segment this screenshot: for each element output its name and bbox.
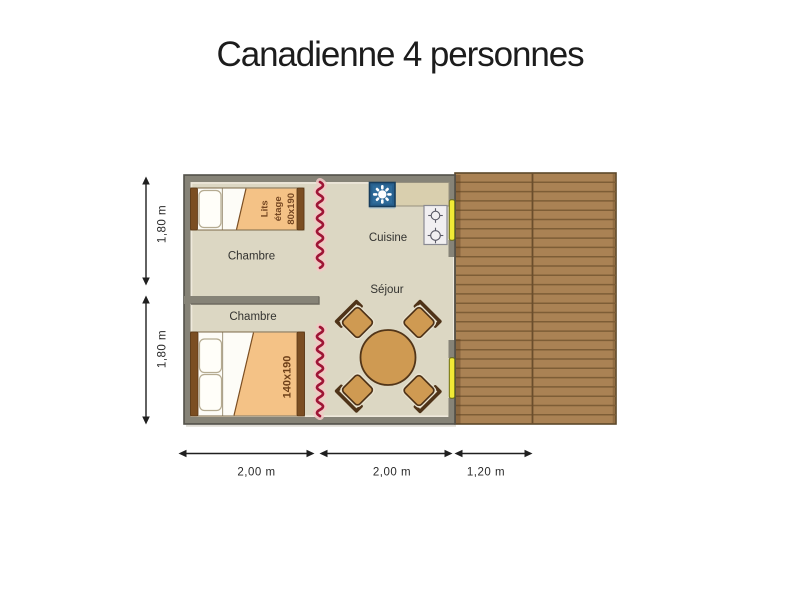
svg-text:2,00 m: 2,00 m (237, 467, 275, 479)
svg-text:1,80 m: 1,80 m (157, 205, 169, 243)
svg-text:140x190: 140x190 (282, 356, 294, 399)
svg-text:Cuisine: Cuisine (369, 232, 407, 244)
svg-text:80x190: 80x190 (286, 193, 297, 225)
svg-text:Lits: Lits (260, 200, 271, 217)
svg-text:Chambre: Chambre (229, 311, 276, 323)
svg-text:Chambre: Chambre (228, 251, 275, 263)
svg-text:1,20 m: 1,20 m (467, 467, 505, 479)
svg-text:Séjour: Séjour (370, 284, 403, 296)
svg-text:1,80 m: 1,80 m (157, 330, 169, 368)
svg-text:2,00 m: 2,00 m (373, 467, 411, 479)
svg-text:étage: étage (273, 196, 284, 221)
